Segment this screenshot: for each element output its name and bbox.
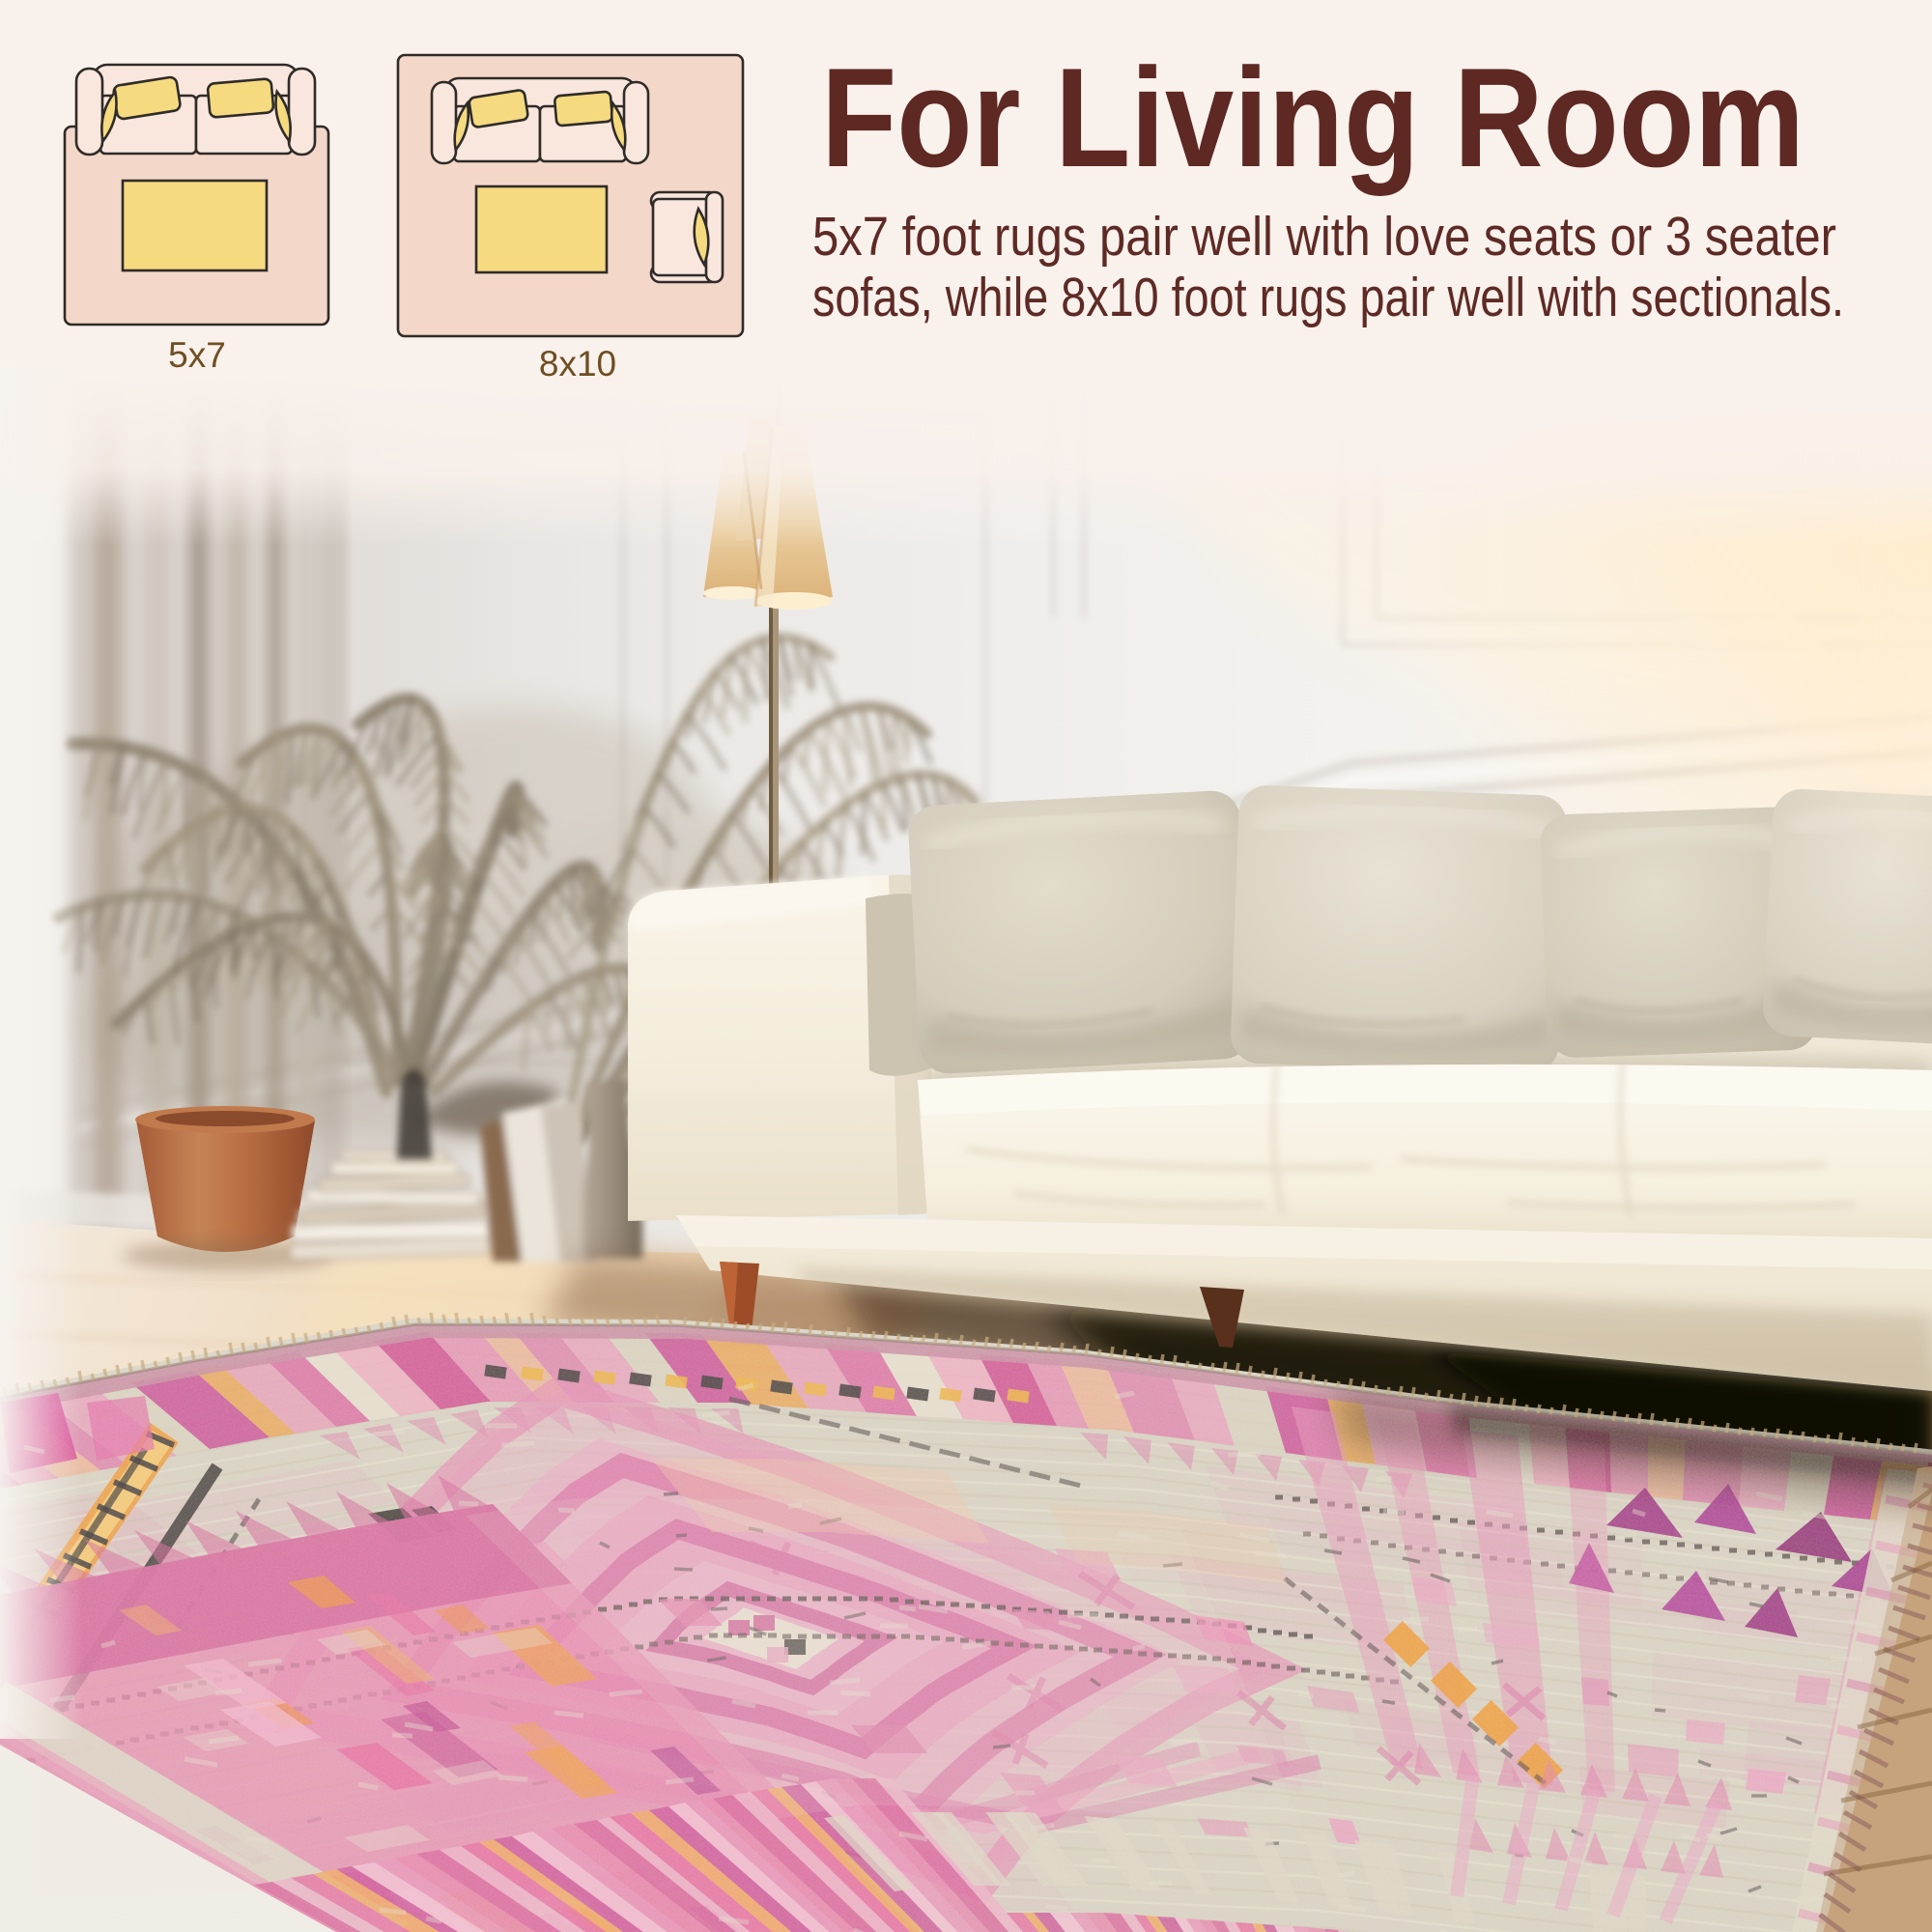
svg-text:5x7 foot rugs pair well with l: 5x7 foot rugs pair well with love seats … — [812, 206, 1836, 268]
svg-text:sofas, while 8x10 foot rugs pa: sofas, while 8x10 foot rugs pair well wi… — [812, 267, 1844, 328]
svg-text:5x7: 5x7 — [168, 335, 226, 375]
svg-text:For Living Room: For Living Room — [821, 39, 1804, 196]
svg-text:8x10: 8x10 — [539, 344, 616, 384]
